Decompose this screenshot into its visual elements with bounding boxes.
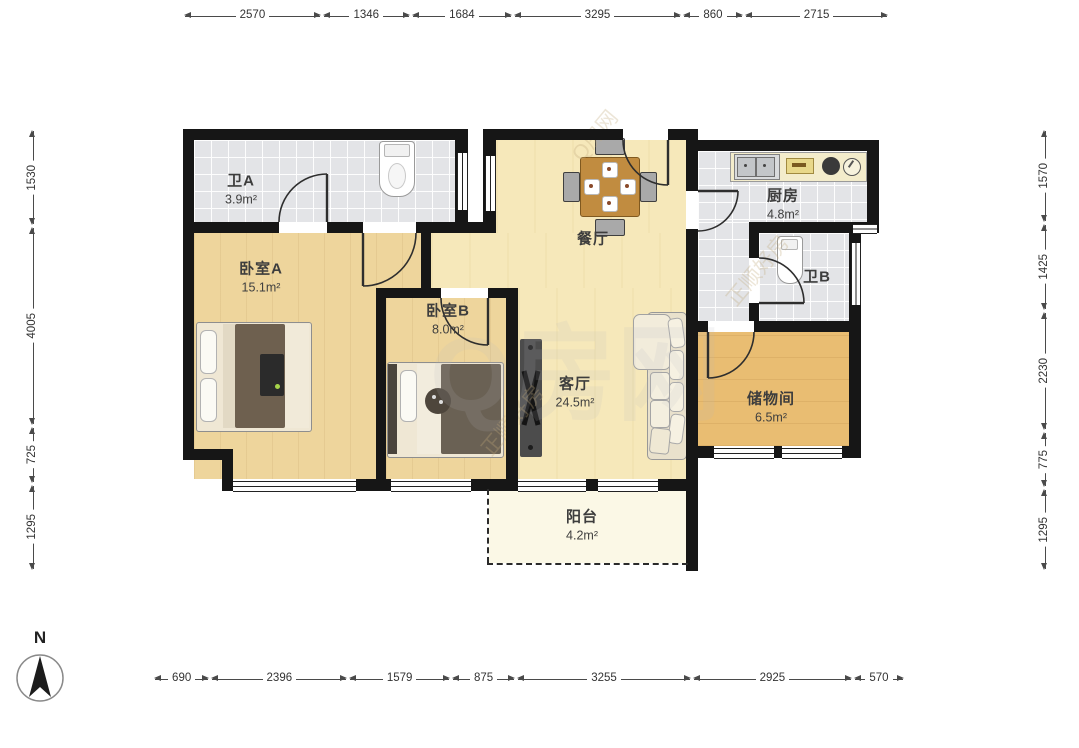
dim-value: 4005 bbox=[25, 309, 41, 343]
room-name: 卫B bbox=[803, 266, 831, 287]
room-name: 卧室B bbox=[426, 300, 470, 321]
dim-value: 725 bbox=[25, 441, 41, 468]
dim-segment: 2715 bbox=[744, 7, 889, 25]
compass: N bbox=[14, 628, 66, 712]
dim-value: 3255 bbox=[587, 671, 621, 687]
room-area: 3.9m² bbox=[225, 193, 257, 207]
dim-value: 1530 bbox=[25, 161, 41, 195]
room-label-bath-a: 卫A 3.9m² bbox=[225, 170, 257, 207]
room-label-storage: 储物间 6.5m² bbox=[747, 388, 795, 425]
dim-value: 1579 bbox=[383, 671, 417, 687]
room-name: 储物间 bbox=[747, 388, 795, 409]
dim-segment: 1425 bbox=[1036, 223, 1054, 311]
dim-segment: 690 bbox=[153, 670, 210, 688]
dim-value: 3295 bbox=[581, 8, 615, 24]
dim-value: 1425 bbox=[1037, 250, 1053, 284]
room-name: 客厅 bbox=[556, 373, 595, 394]
room-label-bed-a: 卧室A 15.1m² bbox=[239, 258, 283, 295]
room-label-bath-b: 卫B bbox=[803, 266, 831, 287]
dim-segment: 2230 bbox=[1036, 311, 1054, 430]
dim-segment: 2925 bbox=[692, 670, 853, 688]
room-label-bed-b: 卧室B 8.0m² bbox=[426, 300, 470, 337]
dimension-row-bottom: 690 2396 1579 875 3255 2925 570 bbox=[153, 670, 905, 688]
dim-value: 2715 bbox=[800, 8, 834, 24]
room-name: 卫A bbox=[225, 170, 257, 191]
room-name: 餐厅 bbox=[577, 228, 609, 249]
dim-segment: 1579 bbox=[348, 670, 450, 688]
dim-segment: 1295 bbox=[24, 484, 42, 571]
dim-segment: 1346 bbox=[322, 7, 411, 25]
dim-segment: 775 bbox=[1036, 431, 1054, 488]
dim-value: 2230 bbox=[1037, 354, 1053, 388]
dim-segment: 4005 bbox=[24, 226, 42, 426]
dim-segment: 1295 bbox=[1036, 488, 1054, 571]
dim-value: 1295 bbox=[25, 510, 41, 544]
dim-value: 2925 bbox=[756, 671, 790, 687]
dimension-row-left: 1530 4005 725 1295 bbox=[24, 129, 42, 571]
dim-segment: 3255 bbox=[516, 670, 692, 688]
dim-segment: 1570 bbox=[1036, 129, 1054, 223]
room-area: 24.5m² bbox=[556, 396, 595, 410]
dim-segment: 2396 bbox=[210, 670, 348, 688]
dim-segment: 2570 bbox=[183, 7, 322, 25]
dim-segment: 3295 bbox=[513, 7, 682, 25]
room-label-kitchen: 厨房 4.8m² bbox=[767, 185, 799, 222]
dim-segment: 1684 bbox=[411, 7, 514, 25]
dim-value: 1346 bbox=[349, 8, 383, 24]
room-area: 8.0m² bbox=[426, 323, 470, 337]
room-label-living: 客厅 24.5m² bbox=[556, 373, 595, 410]
room-area: 4.8m² bbox=[767, 208, 799, 222]
dim-value: 1684 bbox=[445, 8, 479, 24]
compass-north-label: N bbox=[14, 628, 66, 648]
dim-segment: 725 bbox=[24, 426, 42, 483]
room-area: 6.5m² bbox=[747, 411, 795, 425]
room-name: 卧室A bbox=[239, 258, 283, 279]
dim-value: 1295 bbox=[1037, 513, 1053, 547]
dim-segment: 875 bbox=[451, 670, 516, 688]
room-label-balcony: 阳台 4.2m² bbox=[566, 506, 598, 543]
dimension-row-top: 2570 1346 1684 3295 860 2715 bbox=[183, 7, 889, 25]
dim-value: 690 bbox=[168, 671, 195, 687]
dim-value: 1570 bbox=[1037, 159, 1053, 193]
dim-segment: 860 bbox=[682, 7, 744, 25]
floorplan-page: 2570 1346 1684 3295 860 2715 690 2396 15… bbox=[0, 0, 1079, 748]
dim-value: 775 bbox=[1037, 446, 1053, 473]
dim-value: 570 bbox=[865, 671, 892, 687]
dim-segment: 570 bbox=[853, 670, 905, 688]
dim-value: 2396 bbox=[263, 671, 297, 687]
dimension-row-right: 1570 1425 2230 775 1295 bbox=[1036, 129, 1054, 571]
room-area: 15.1m² bbox=[239, 281, 283, 295]
compass-needle-icon bbox=[14, 649, 66, 707]
floorplan: 卫A 3.9m² 卧室A 15.1m² 卧室B 8.0m² 餐厅 厨房 4.8m… bbox=[181, 126, 881, 576]
room-area: 4.2m² bbox=[566, 529, 598, 543]
dim-value: 875 bbox=[470, 671, 497, 687]
room-name: 阳台 bbox=[566, 506, 598, 527]
dim-value: 860 bbox=[699, 8, 726, 24]
room-label-dining: 餐厅 bbox=[577, 228, 609, 249]
room-name: 厨房 bbox=[767, 185, 799, 206]
dim-segment: 1530 bbox=[24, 129, 42, 226]
dim-value: 2570 bbox=[236, 8, 270, 24]
